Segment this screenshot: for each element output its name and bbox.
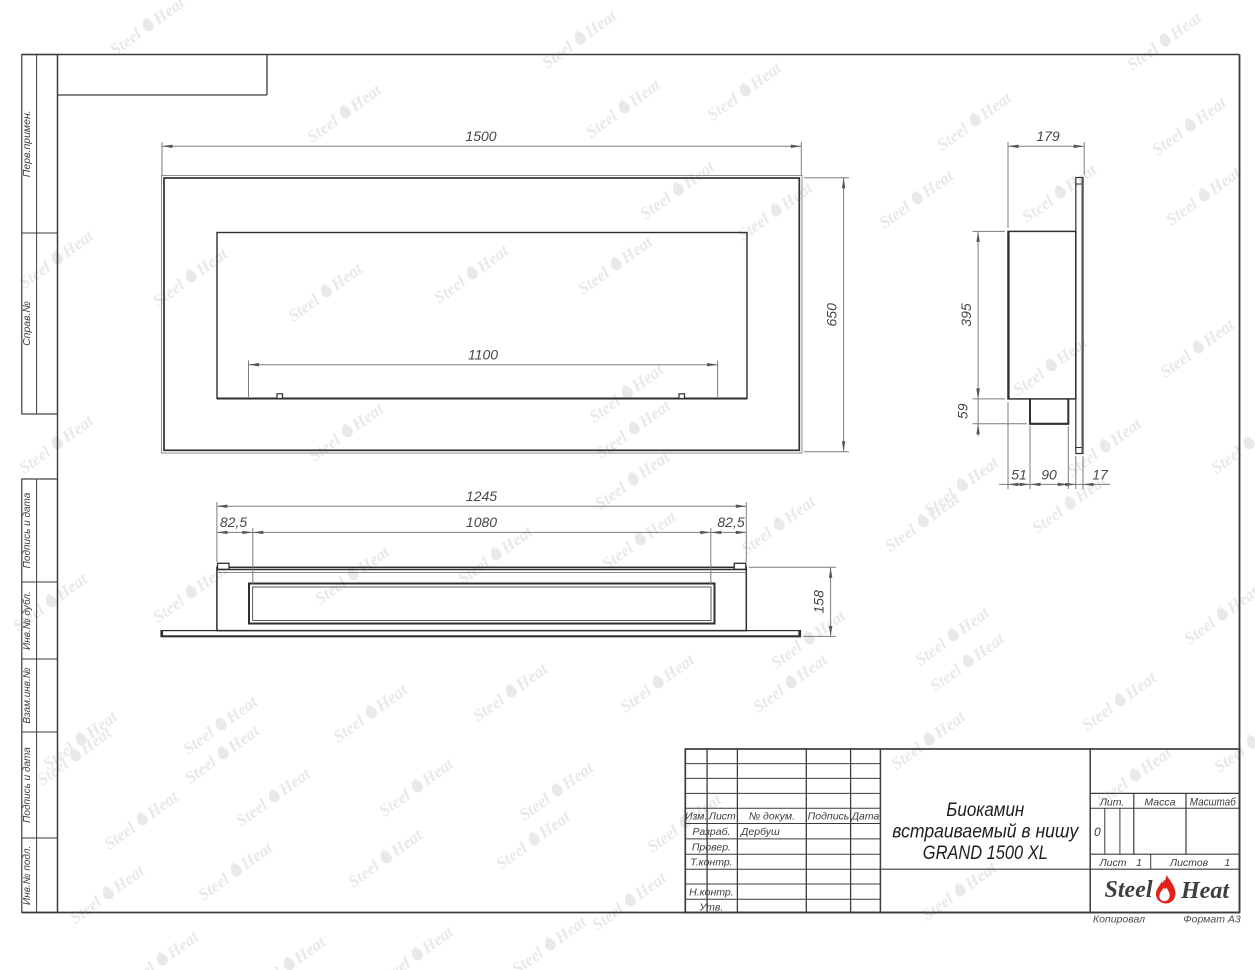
svg-text:1: 1 xyxy=(1224,857,1230,869)
svg-text:Формат А3: Формат А3 xyxy=(1183,914,1241,926)
svg-text:Копировал: Копировал xyxy=(1093,914,1145,926)
svg-text:Дербуш: Дербуш xyxy=(740,826,780,838)
svg-text:Т.контр.: Т.контр. xyxy=(690,857,732,869)
svg-text:1500: 1500 xyxy=(465,128,496,144)
svg-text:Изм.: Изм. xyxy=(685,811,707,823)
svg-text:Справ.№: Справ.№ xyxy=(21,301,33,346)
svg-text:№ докум.: № докум. xyxy=(749,811,795,823)
svg-text:90: 90 xyxy=(1041,467,1057,483)
svg-text:1245: 1245 xyxy=(466,488,497,504)
svg-text:Лит.: Лит. xyxy=(1099,797,1125,809)
svg-text:158: 158 xyxy=(810,590,826,614)
svg-text:Heat: Heat xyxy=(1180,878,1230,904)
svg-text:Перв.примен.: Перв.примен. xyxy=(21,110,33,177)
svg-text:1: 1 xyxy=(1136,857,1142,869)
svg-text:Steel: Steel xyxy=(1105,877,1153,903)
svg-text:59: 59 xyxy=(955,403,971,419)
svg-text:Утв.: Утв. xyxy=(698,901,723,913)
svg-text:Инв.№ дубл.: Инв.№ дубл. xyxy=(21,591,33,650)
svg-text:82,5: 82,5 xyxy=(220,514,247,530)
svg-text:Лист: Лист xyxy=(1098,857,1126,869)
svg-text:Подпись и дата: Подпись и дата xyxy=(22,492,33,568)
svg-text:650: 650 xyxy=(824,303,840,327)
svg-text:Н.контр.: Н.контр. xyxy=(689,887,733,899)
svg-text:Подпись: Подпись xyxy=(808,811,850,823)
svg-text:Биокамин: Биокамин xyxy=(946,800,1024,821)
svg-text:Масса: Масса xyxy=(1144,797,1175,809)
svg-text:GRAND 1500 XL: GRAND 1500 XL xyxy=(923,843,1048,864)
svg-text:0: 0 xyxy=(1094,825,1101,839)
svg-text:Масштаб: Масштаб xyxy=(1190,797,1237,809)
svg-text:Инв.№ подл.: Инв.№ подл. xyxy=(22,846,33,905)
svg-text:179: 179 xyxy=(1036,128,1060,144)
svg-text:Провер.: Провер. xyxy=(692,841,731,853)
svg-text:395: 395 xyxy=(958,303,974,327)
svg-text:17: 17 xyxy=(1092,467,1109,483)
svg-text:Дата: Дата xyxy=(851,811,880,823)
svg-text:Листов: Листов xyxy=(1169,857,1209,869)
svg-text:Подпись и дата: Подпись и дата xyxy=(22,747,33,823)
svg-text:Лист: Лист xyxy=(708,811,736,823)
svg-text:82,5: 82,5 xyxy=(717,514,744,530)
svg-text:1100: 1100 xyxy=(468,347,498,363)
svg-text:1080: 1080 xyxy=(466,514,497,530)
svg-text:встраиваемый в нишу: встраиваемый в нишу xyxy=(892,822,1079,843)
svg-text:51: 51 xyxy=(1011,467,1027,483)
svg-text:Взам.инв.№: Взам.инв.№ xyxy=(22,667,33,723)
svg-text:Разраб.: Разраб. xyxy=(692,826,730,838)
